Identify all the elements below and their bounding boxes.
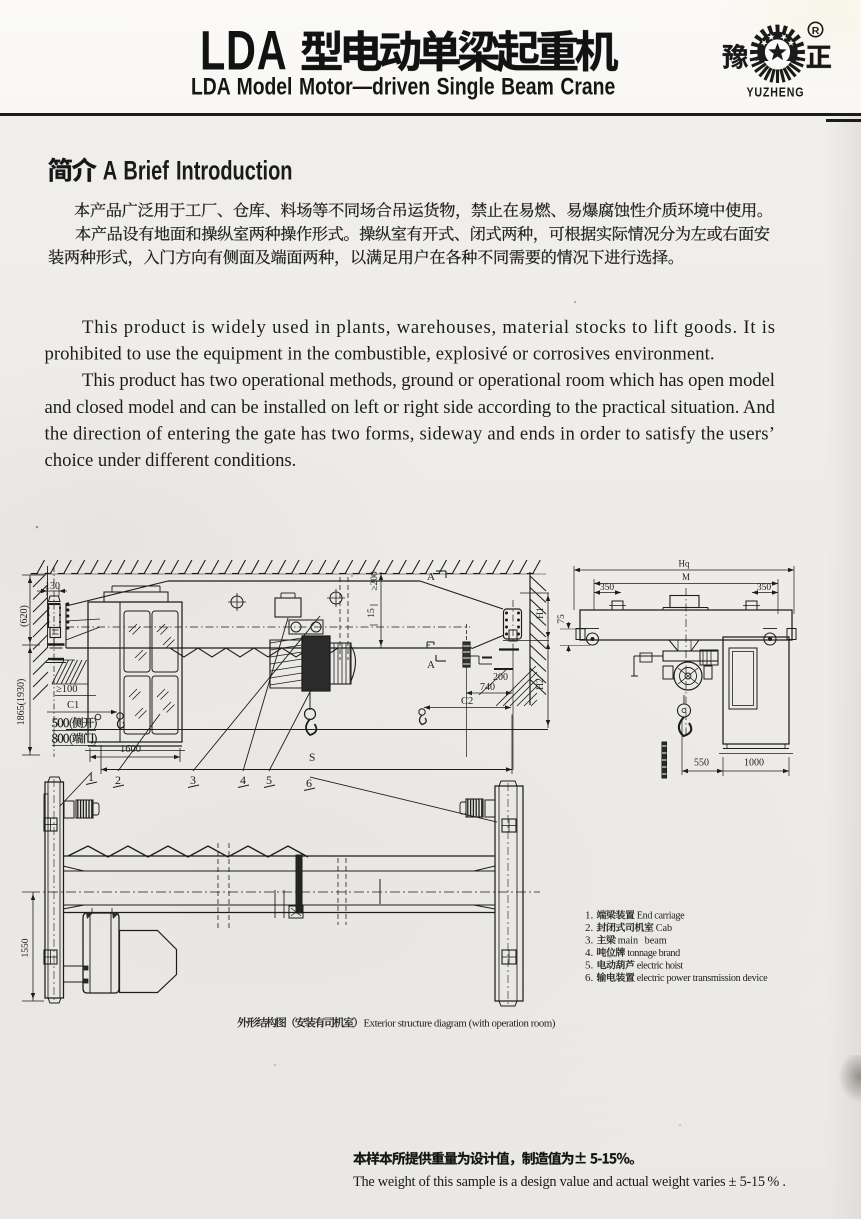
svg-text:S: S bbox=[309, 752, 315, 764]
svg-text:A: A bbox=[427, 571, 435, 583]
svg-text:and closed model and can be in: and closed model and can be installed on… bbox=[45, 397, 776, 418]
svg-text:A: A bbox=[427, 659, 435, 671]
svg-text:(620): (620) bbox=[19, 605, 30, 627]
svg-text:4: 4 bbox=[240, 773, 246, 787]
svg-text:350: 350 bbox=[600, 583, 615, 593]
svg-text:M: M bbox=[682, 572, 690, 582]
svg-text:A Brief Introduction: A Brief Introduction bbox=[103, 156, 293, 187]
svg-text:550: 550 bbox=[694, 758, 709, 769]
svg-text:End carriage: End carriage bbox=[637, 910, 685, 921]
svg-text:C2: C2 bbox=[461, 696, 473, 707]
svg-text:LDA Model Motor—driven Single: LDA Model Motor—driven Single Beam Crane bbox=[191, 72, 615, 100]
svg-text:H2: H2 bbox=[536, 678, 546, 690]
svg-text:1550: 1550 bbox=[21, 938, 31, 957]
svg-text:YUZHENG: YUZHENG bbox=[747, 84, 805, 99]
svg-text:Cab: Cab bbox=[656, 923, 672, 934]
svg-text:5.: 5. bbox=[585, 959, 594, 971]
svg-text:2: 2 bbox=[115, 773, 121, 787]
svg-text:main beam: main beam bbox=[618, 935, 667, 946]
svg-text:5: 5 bbox=[266, 773, 272, 787]
svg-text:4.: 4. bbox=[585, 947, 594, 959]
svg-text:prohibited to use the equipmen: prohibited to use the equipment in the c… bbox=[45, 344, 715, 365]
svg-text:15: 15 bbox=[367, 608, 377, 618]
svg-text:the direction of entering the: the direction of entering the gate has t… bbox=[45, 423, 776, 444]
svg-text:1: 1 bbox=[88, 770, 94, 784]
svg-text:C1: C1 bbox=[67, 700, 79, 711]
svg-text:tonnage brand: tonnage brand bbox=[627, 948, 680, 959]
svg-text:≥200: ≥200 bbox=[370, 571, 380, 591]
svg-text:≥100: ≥100 bbox=[56, 684, 78, 695]
svg-text:200: 200 bbox=[493, 672, 508, 683]
svg-text:choice under different conditi: choice under different conditions. bbox=[45, 450, 297, 471]
svg-text:H1: H1 bbox=[536, 607, 546, 619]
svg-text:R: R bbox=[812, 25, 820, 37]
svg-text:The weight of this sample is a: The weight of this sample is a design va… bbox=[353, 1174, 786, 1190]
svg-text:3.: 3. bbox=[585, 934, 594, 946]
svg-text:electric power transmission de: electric power transmission device bbox=[637, 973, 768, 984]
svg-text:This product is widely used in: This product is widely used in plants, w… bbox=[82, 317, 775, 338]
svg-text:1865(1930): 1865(1930) bbox=[16, 679, 27, 726]
svg-text:6: 6 bbox=[306, 776, 312, 790]
svg-text:electric hoist: electric hoist bbox=[637, 960, 684, 971]
svg-text:Hq: Hq bbox=[679, 559, 690, 569]
svg-text:75: 75 bbox=[557, 614, 567, 624]
svg-text:350: 350 bbox=[757, 583, 772, 593]
svg-text:3: 3 bbox=[190, 773, 196, 787]
svg-text:2.: 2. bbox=[585, 922, 594, 934]
svg-text:6.: 6. bbox=[585, 972, 594, 984]
svg-text:1000: 1000 bbox=[744, 758, 764, 769]
svg-text:Exterior structure diagram (wi: Exterior structure diagram (with operati… bbox=[363, 1018, 555, 1030]
svg-text:This product has two operation: This product has two operational methods… bbox=[82, 370, 775, 391]
svg-text:1.: 1. bbox=[585, 909, 594, 921]
